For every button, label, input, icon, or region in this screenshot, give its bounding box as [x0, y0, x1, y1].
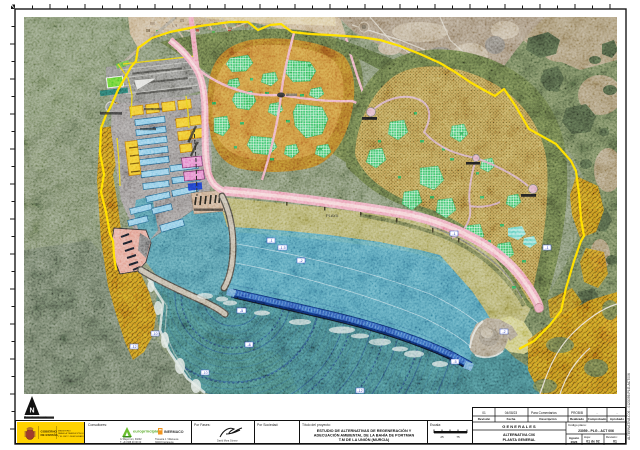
svg-text:Y EL RETO DEMOGRÁFICO: Y EL RETO DEMOGRÁFICO	[58, 435, 85, 438]
svg-text:Hoja:: Hoja:	[584, 435, 591, 439]
svg-text:PLANTA GENERAL: PLANTA GENERAL	[503, 438, 537, 442]
svg-text:ADECUACIÓN AMBIENTAL DE LA BAH: ADECUACIÓN AMBIENTAL DE LA BAHÍA DE PORT…	[314, 433, 415, 438]
svg-text:PROB/B: PROB/B	[571, 411, 583, 415]
svg-text:Revisión:: Revisión:	[606, 435, 618, 439]
svg-text:Para Comentarios: Para Comentarios	[531, 411, 557, 415]
svg-text:75: 75	[456, 435, 460, 439]
svg-text:Código plano:: Código plano:	[568, 423, 587, 427]
svg-text:David Mora Gómez: David Mora Gómez	[217, 440, 238, 443]
svg-text:Consultores:: Consultores:	[88, 423, 107, 427]
svg-text:ALTERNATIVA C06: ALTERNATIVA C06	[503, 433, 535, 437]
svg-text:DE ESPAÑA: DE ESPAÑA	[41, 432, 59, 437]
svg-text:Por Fases:: Por Fases:	[194, 423, 210, 427]
svg-text:N: N	[29, 408, 34, 415]
svg-text:ESTUDIO DE ALTERNATIVAS DE REG: ESTUDIO DE ALTERNATIVAS DE REGENERACIÓN …	[317, 428, 412, 433]
svg-text:04/08/23: 04/08/23	[505, 411, 518, 415]
svg-text:T. +34 968 00 00 00: T. +34 968 00 00 00	[120, 441, 142, 444]
svg-text:Aprobado: Aprobado	[610, 417, 624, 421]
svg-text:PARA LA TRANSICIÓN ECOLÓGICA: PARA LA TRANSICIÓN ECOLÓGICA	[58, 432, 85, 435]
svg-text:-: -	[596, 411, 597, 415]
svg-text:23059-PLG-ACT006: 23059-PLG-ACT006	[627, 373, 631, 404]
svg-text:Descripción: Descripción	[539, 417, 556, 421]
svg-text:-: -	[616, 411, 617, 415]
svg-text:Título del proyecto:: Título del proyecto:	[302, 423, 331, 427]
svg-text:2023: 2023	[571, 440, 578, 444]
svg-text:23059 - PLG - ACT 006: 23059 - PLG - ACT 006	[578, 429, 614, 433]
svg-text:MINISTERIO: MINISTERIO	[58, 431, 71, 433]
svg-text:T.M DE LA UNIÓN (MURCIA): T.M DE LA UNIÓN (MURCIA)	[339, 437, 390, 442]
svg-text:30203 Cartagena: 30203 Cartagena	[155, 441, 174, 444]
svg-text:01: 01	[482, 411, 486, 415]
svg-text:01: 01	[613, 440, 617, 444]
svg-text:europrincipia: europrincipia	[133, 429, 159, 434]
svg-text:ALTERNATIVA C06 - 01: ALTERNATIVA C06 - 01	[627, 404, 631, 440]
svg-text:25: 25	[440, 435, 444, 439]
svg-text:01 de 02: 01 de 02	[586, 440, 599, 444]
svg-text:Fecha: Fecha	[507, 417, 516, 421]
svg-text:G E N E R A L E S: G E N E R A L E S	[502, 424, 536, 429]
svg-text:Revisión: Revisión	[478, 417, 491, 421]
svg-text:Por Sociedad:: Por Sociedad:	[257, 423, 278, 427]
svg-text:Escala:: Escala:	[430, 423, 441, 427]
svg-text:Realizado: Realizado	[570, 417, 584, 421]
svg-text:Comprobado: Comprobado	[588, 417, 607, 421]
svg-text:INERMACO: INERMACO	[164, 430, 184, 434]
